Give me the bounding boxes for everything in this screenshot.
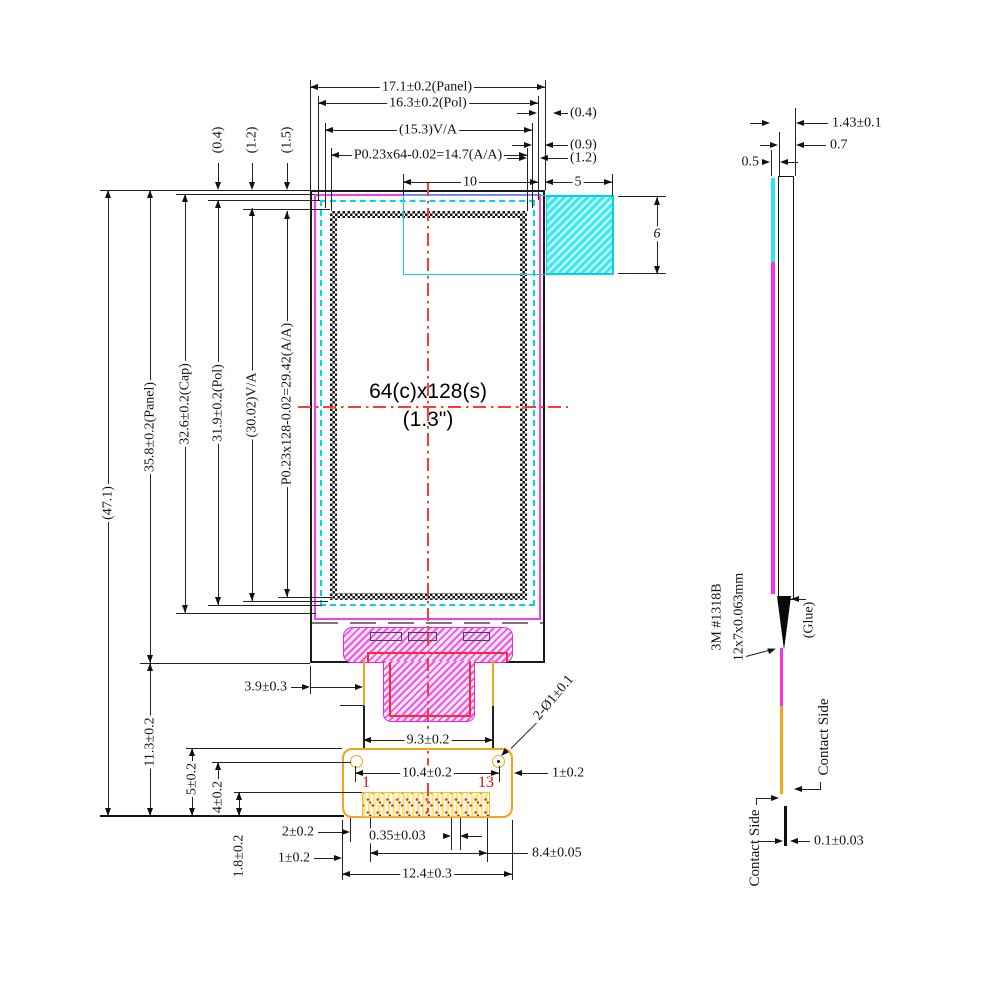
dim-line xyxy=(553,145,568,146)
fpc-stiffener-mark xyxy=(463,632,490,641)
dim-arrow xyxy=(530,179,538,185)
dim-arrow xyxy=(545,142,553,148)
fpc-red-outline xyxy=(367,652,369,662)
dim-arrow xyxy=(147,190,153,198)
dim-arrow xyxy=(524,127,532,133)
dim-arrow xyxy=(403,179,411,185)
ext-line xyxy=(512,820,513,880)
dim-arrow xyxy=(355,770,363,776)
fpc-film-edge xyxy=(492,660,494,706)
dim-arrow xyxy=(215,182,221,190)
fpc-red-outline xyxy=(469,662,471,716)
dim-arrow xyxy=(182,605,188,613)
ext-line xyxy=(310,80,311,190)
fpc-red-outline xyxy=(367,652,507,654)
dim-label: 1.43±0.1 xyxy=(830,115,884,130)
ext-line xyxy=(208,200,320,201)
dim-arrow xyxy=(460,833,468,839)
dim-arrow xyxy=(479,850,487,856)
dim-arrow xyxy=(504,871,512,877)
dim-arrow xyxy=(189,748,195,756)
hole-callout-label: 2-Ø1±0.1 xyxy=(529,671,578,725)
dim-arrow xyxy=(236,808,242,816)
dim-arrow xyxy=(215,200,221,208)
dim-arrow xyxy=(182,194,188,202)
pin-number-first: 1 xyxy=(362,774,370,792)
dim-arrow xyxy=(529,110,537,116)
dim-arrow xyxy=(215,762,221,770)
dim-arrow xyxy=(762,120,770,126)
dim-arrow xyxy=(236,792,242,800)
dim-arrow xyxy=(654,197,660,205)
dim-arrow xyxy=(775,838,783,844)
dim-arrow xyxy=(310,84,318,90)
dim-line xyxy=(548,158,568,159)
tape-label-line1: 3M #1318B xyxy=(709,581,724,652)
dim-arrow xyxy=(147,663,153,671)
dim-label: 17.1±0.2(Panel) xyxy=(380,79,474,94)
ext-line xyxy=(310,666,311,694)
side-film-cyan xyxy=(771,178,775,262)
side-fpc-end xyxy=(784,806,787,846)
fpc-film-edge xyxy=(363,660,365,706)
dim-arrow xyxy=(762,159,770,165)
dim-label: 0.35±0.03 xyxy=(367,828,428,843)
dim-line xyxy=(291,687,302,688)
connector-hole xyxy=(350,755,363,768)
pin-band xyxy=(362,792,490,817)
dim-arrow xyxy=(325,127,333,133)
bonding-pad-fill xyxy=(546,196,613,274)
dim-arrow xyxy=(334,855,342,861)
dim-label: 31.9±0.2(Pol) xyxy=(210,362,225,444)
dim-label: 4±0.2 xyxy=(210,779,225,815)
dim-arrow xyxy=(519,155,527,161)
dim-label: 5 xyxy=(573,174,584,189)
fpc-tail xyxy=(383,661,475,722)
dim-arrow xyxy=(355,684,363,690)
ext-line xyxy=(100,190,310,191)
bottom-reference-line xyxy=(100,815,344,817)
ext-line xyxy=(325,123,326,208)
contact-side-upper-label: Contact Side xyxy=(816,696,833,777)
ext-line xyxy=(451,818,452,850)
ext-line xyxy=(278,597,332,598)
dim-line xyxy=(804,145,826,146)
ext-line xyxy=(340,705,364,706)
ext-line xyxy=(487,818,488,862)
centerline-vertical xyxy=(427,183,429,812)
dim-label: 1±0.2 xyxy=(276,850,312,865)
dim-arrow xyxy=(215,597,221,605)
dim-line xyxy=(561,113,568,114)
ext-line xyxy=(527,148,528,211)
dim-arrow xyxy=(770,142,778,148)
dim-label: 0.7 xyxy=(828,137,850,152)
dim-arrow xyxy=(363,737,371,743)
leader-arrow xyxy=(794,786,802,792)
ext-line xyxy=(234,792,362,793)
dim-line xyxy=(218,163,219,182)
dim-arrow xyxy=(318,100,326,106)
ext-line xyxy=(771,150,772,176)
dim-label: 3.9±0.3 xyxy=(242,679,289,694)
ext-line xyxy=(612,174,613,196)
dim-line xyxy=(314,858,334,859)
dim-line xyxy=(750,123,762,124)
dim-arrow xyxy=(331,152,339,158)
glue-label: (Glue) xyxy=(801,600,816,641)
dim-arrow xyxy=(249,182,255,190)
side-glue-wedge xyxy=(777,596,791,650)
dim-line xyxy=(804,123,828,124)
dim-line xyxy=(512,145,524,146)
side-fpc-orange xyxy=(780,706,783,794)
dim-arrow xyxy=(654,266,660,274)
dim-label: (1.5) xyxy=(279,125,294,156)
ext-line xyxy=(186,748,342,749)
dim-arrow xyxy=(284,182,290,190)
dim-arrow xyxy=(249,593,255,601)
dim-arrow xyxy=(780,159,788,165)
ext-line xyxy=(779,132,780,176)
dim-line xyxy=(517,113,529,114)
dim-arrow xyxy=(790,838,798,844)
dim-label: (1.2) xyxy=(244,125,259,156)
ext-line xyxy=(499,766,500,782)
ext-line xyxy=(545,80,546,190)
dim-label: 32.6±0.2(Cap) xyxy=(177,361,192,447)
dim-label: 16.3±0.2(Pol) xyxy=(387,95,469,110)
dim-line xyxy=(758,841,776,842)
dim-label: (1.2) xyxy=(568,150,599,165)
dim-label: 10 xyxy=(461,174,479,189)
dim-line xyxy=(287,163,288,182)
ext-line xyxy=(532,123,533,208)
dim-label: 12.4±0.3 xyxy=(400,866,454,881)
leader-arrow xyxy=(771,795,779,801)
pin-number-last: 13 xyxy=(478,774,494,792)
dim-arrow xyxy=(105,190,111,198)
dim-label: 0.1±0.03 xyxy=(812,833,866,848)
dim-arrow xyxy=(545,179,553,185)
dim-label: 10.4±0.2 xyxy=(400,765,454,780)
dim-arrow xyxy=(514,770,522,776)
dim-label: 8.4±0.05 xyxy=(530,845,584,860)
ext-line xyxy=(176,613,316,614)
dim-line xyxy=(760,145,770,146)
leader-line xyxy=(511,723,537,749)
centerline-horizontal xyxy=(298,406,568,408)
ext-line xyxy=(208,605,322,606)
dim-label: (15.3)V/A xyxy=(397,122,459,137)
leader-line xyxy=(756,798,771,799)
leader-arrow xyxy=(791,596,799,602)
dim-label: (30.02)V/A xyxy=(244,371,259,440)
leader-line xyxy=(756,798,757,805)
dim-line xyxy=(788,162,798,163)
leader-arrow xyxy=(767,646,777,654)
dim-line xyxy=(522,773,548,774)
dim-arrow xyxy=(189,808,195,816)
dim-label: 1±0.2 xyxy=(550,765,586,780)
dim-label: 35.8±0.2(Panel) xyxy=(142,380,157,474)
ext-line xyxy=(318,96,319,200)
dim-line xyxy=(798,841,810,842)
dim-label: (0.4) xyxy=(210,125,225,156)
dim-arrow xyxy=(249,208,255,216)
dim-label: (47.1) xyxy=(100,484,115,522)
dim-arrow xyxy=(105,808,111,816)
ext-line xyxy=(243,601,328,602)
dim-arrow xyxy=(796,142,804,148)
ext-line xyxy=(538,96,539,200)
dim-arrow xyxy=(553,110,561,116)
dim-arrow xyxy=(284,589,290,597)
ext-line xyxy=(176,194,314,195)
fpc-red-outline xyxy=(389,662,391,716)
ext-line xyxy=(243,209,330,210)
dim-line xyxy=(507,158,519,159)
dim-label: 9.3±0.2 xyxy=(405,732,452,747)
dim-label: 2±0.2 xyxy=(280,824,316,839)
dim-arrow xyxy=(302,684,310,690)
dim-line xyxy=(318,832,342,833)
dim-arrow xyxy=(491,770,499,776)
dim-label: 6 xyxy=(652,226,663,241)
ext-line xyxy=(350,818,351,842)
leader-line xyxy=(802,789,821,790)
dim-arrow xyxy=(537,84,545,90)
dim-line xyxy=(370,853,487,854)
dim-label: 1.8±0.2 xyxy=(231,833,246,880)
leader-line xyxy=(799,599,806,600)
dim-label: (0.4) xyxy=(568,105,599,120)
dim-arrow xyxy=(284,211,290,219)
dim-label: P0.23x64-0.02=14.7(A/A) xyxy=(352,147,504,162)
dim-label: 11.3±0.2 xyxy=(142,715,157,768)
dim-label: 5±0.2 xyxy=(184,761,199,797)
dim-arrow xyxy=(530,100,538,106)
side-fpc-magenta xyxy=(780,648,783,706)
dim-line xyxy=(468,836,482,837)
dim-arrow xyxy=(342,829,350,835)
dim-label: 0.5 xyxy=(740,154,762,169)
dim-arrow xyxy=(443,833,451,839)
ext-line xyxy=(140,663,310,664)
contact-side-lower-label: Contact Side xyxy=(747,807,764,888)
side-film-magenta xyxy=(771,262,775,594)
dim-line xyxy=(487,853,528,854)
dim-arrow xyxy=(147,808,153,816)
dim-arrow xyxy=(540,155,548,161)
drawing-canvas: { "drawing": { "front": { "display": { "… xyxy=(0,0,1000,1000)
ext-line xyxy=(212,762,351,763)
dim-arrow xyxy=(796,120,804,126)
fpc-stiffener-mark xyxy=(408,632,437,641)
tape-label-line2: 12x7x0.063mm xyxy=(731,571,746,663)
fpc-red-outline xyxy=(506,652,508,662)
fpc-red-outline xyxy=(389,715,470,717)
hole-center-dot xyxy=(497,760,500,763)
dim-label: P0.23x128-0.02=29.42(A/A) xyxy=(279,321,294,487)
dim-arrow xyxy=(147,655,153,663)
dim-arrow xyxy=(342,871,350,877)
fpc-stiffener-mark xyxy=(370,632,402,641)
dim-arrow xyxy=(370,850,378,856)
side-glass xyxy=(778,176,794,600)
dim-line xyxy=(310,687,355,688)
dim-line xyxy=(252,163,253,182)
dim-arrow xyxy=(604,179,612,185)
dim-arrow xyxy=(485,737,493,743)
dim-arrow xyxy=(524,142,532,148)
